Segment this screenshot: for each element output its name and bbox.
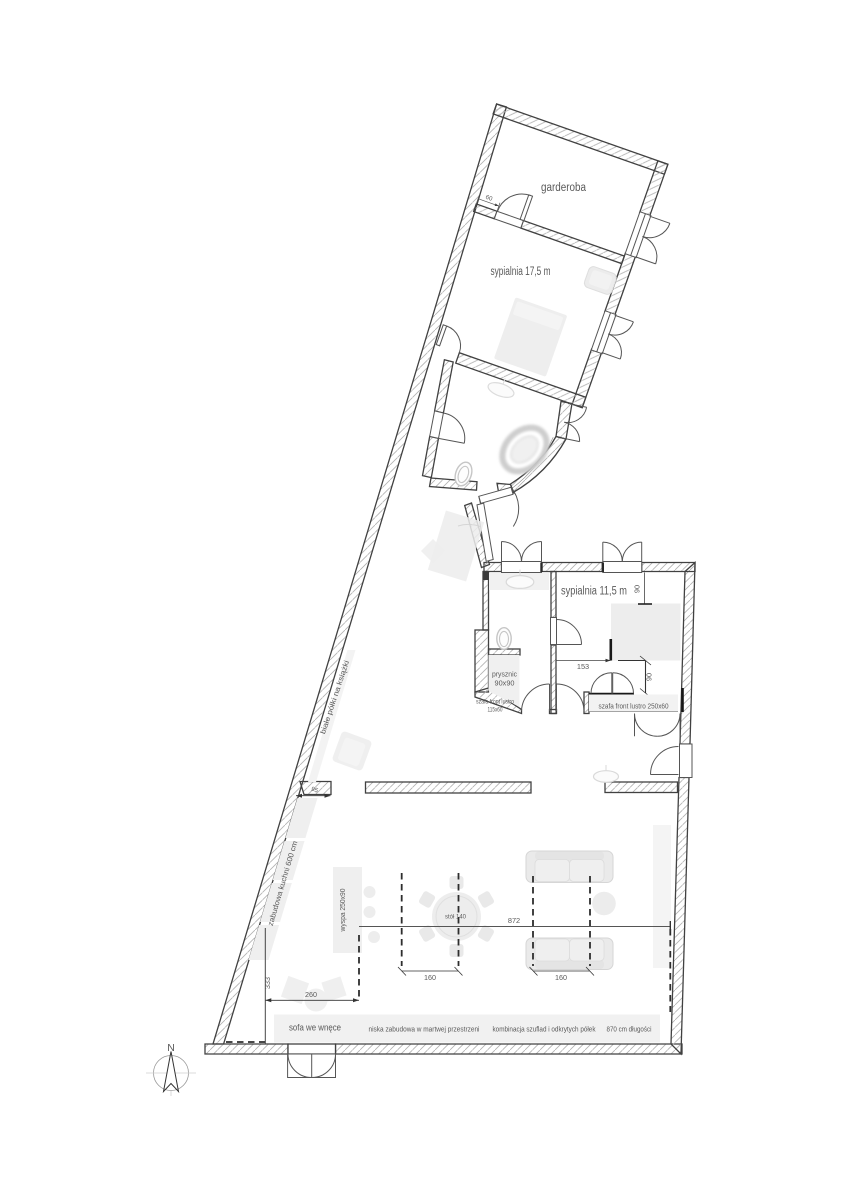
svg-text:153: 153 (577, 662, 589, 671)
svg-text:160: 160 (424, 973, 436, 982)
svg-text:870 cm długości: 870 cm długości (607, 1025, 652, 1034)
svg-text:872: 872 (508, 916, 520, 925)
svg-text:szafa front lustro: szafa front lustro (476, 699, 514, 706)
svg-text:sypialnia 11,5 m: sypialnia 11,5 m (561, 586, 627, 598)
svg-text:90: 90 (633, 585, 642, 593)
svg-text:90x90: 90x90 (495, 681, 515, 688)
svg-text:sofa we wnęce: sofa we wnęce (289, 1023, 341, 1034)
svg-text:wyspa 250x90: wyspa 250x90 (340, 888, 347, 932)
svg-text:niska zabudowa w martwej przes: niska zabudowa w martwej przestrzeni (369, 1025, 480, 1034)
svg-text:90: 90 (645, 673, 654, 681)
svg-text:333: 333 (263, 977, 272, 989)
svg-text:garderoba: garderoba (541, 182, 587, 194)
svg-text:szafa front lustro 250x60: szafa front lustro 250x60 (599, 702, 669, 711)
svg-text:kombinacja szuflad i odkrytych: kombinacja szuflad i odkrytych półek (493, 1025, 596, 1034)
svg-text:prysznic: prysznic (492, 672, 517, 679)
svg-text:sypialnia 17,5 m: sypialnia 17,5 m (491, 266, 551, 278)
svg-text:260: 260 (305, 990, 317, 999)
svg-text:115x60: 115x60 (488, 707, 503, 714)
svg-text:stół 140: stół 140 (445, 914, 466, 921)
svg-text:160: 160 (555, 973, 567, 982)
svg-text:N: N (167, 1042, 175, 1054)
